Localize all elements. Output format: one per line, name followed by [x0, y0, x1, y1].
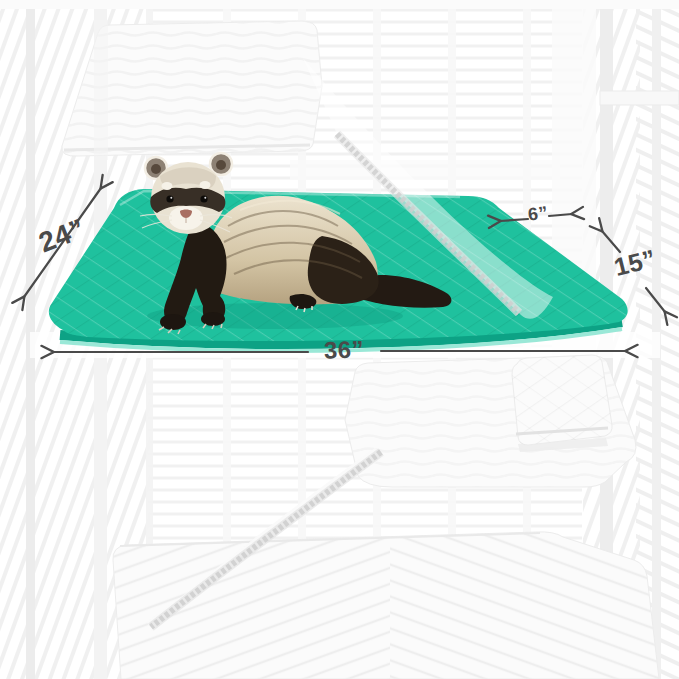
ferret-eye [166, 195, 173, 202]
dimension-label-36: 36” [323, 335, 364, 364]
ferret-eye [200, 195, 207, 202]
top-level-mat [62, 20, 322, 160]
cage-top-rail [0, 0, 679, 9]
cage-side-rail [600, 91, 679, 105]
cage-mid-rail [290, 160, 560, 180]
dimension-label-6: 6” [527, 202, 549, 225]
product-image-canvas: 24” 6” 15” 36” [0, 0, 679, 679]
